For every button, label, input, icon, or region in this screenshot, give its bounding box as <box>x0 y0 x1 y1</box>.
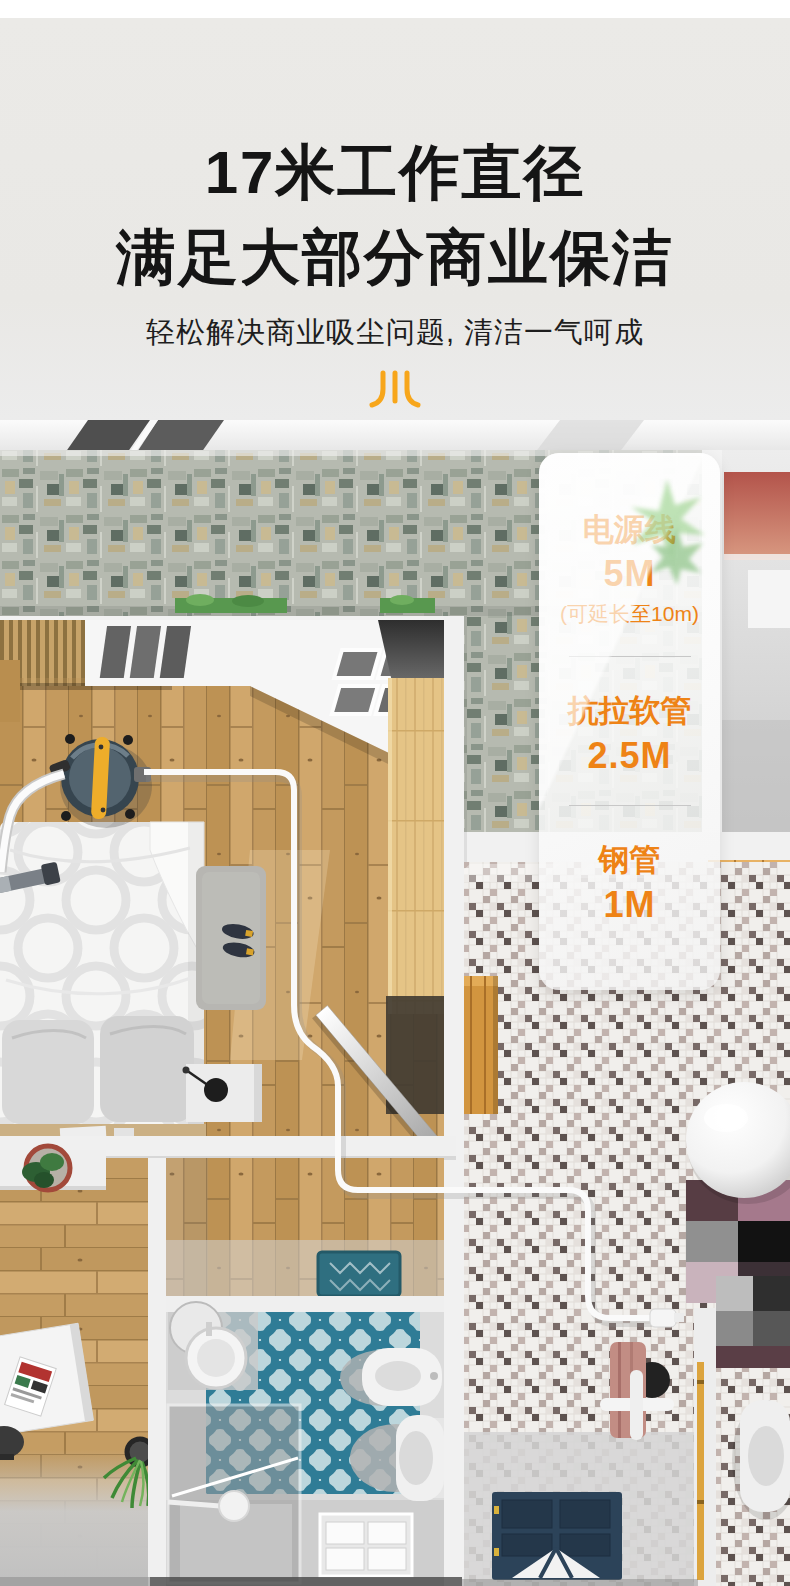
bedside-rug <box>196 866 266 1010</box>
blue-bathroom <box>166 1302 444 1586</box>
grid-mat <box>320 1514 412 1576</box>
office-room <box>0 1146 153 1586</box>
spec-label: 钢管 <box>539 838 720 882</box>
header: 17米工作直径 满足大部分商业保洁 轻松解决商业吸尘问题, 清洁一气呵成 <box>0 18 790 420</box>
shelf-with-plant <box>0 1146 106 1190</box>
shower-head <box>219 1491 249 1521</box>
product-detail-page: 17米工作直径 满足大部分商业保洁 轻松解决商业吸尘问题, 清洁一气呵成 <box>0 0 790 1586</box>
wall-shelf <box>0 660 20 722</box>
nightstand <box>183 1064 263 1122</box>
specs-panel: 电源线 5M (可延长至10m) 抗拉软管 2.5M 钢管 1M <box>539 453 720 990</box>
wall-with-yellow-door <box>694 1308 716 1586</box>
blue-door <box>492 1492 622 1580</box>
spec-note: (可延长至10m) <box>539 597 720 630</box>
lamp-head <box>204 1078 228 1102</box>
spec-item-power-cord: 电源线 5M (可延长至10m) <box>539 509 720 630</box>
bed <box>0 822 206 1146</box>
wall-office-right <box>148 1158 166 1586</box>
hallway <box>166 1158 444 1312</box>
shower-tub <box>168 1405 300 1583</box>
checker-wall-tiles <box>716 1276 790 1368</box>
bathroom-sink <box>168 1302 258 1390</box>
wall-bedroom-right <box>444 616 464 1586</box>
spec-label: 抗拉软管 <box>539 689 720 733</box>
wardrobe <box>388 678 444 1014</box>
bidet <box>340 1348 442 1406</box>
spec-value: 5M <box>539 551 720 597</box>
spec-item-steel-tube: 钢管 1M <box>539 838 720 928</box>
floorplan-image: 电源线 5M (可延长至10m) 抗拉软管 2.5M 钢管 1M <box>0 420 790 1586</box>
wall-picture <box>724 472 790 560</box>
white-dresser <box>748 570 790 628</box>
title-line-2: 满足大部分商业保洁 <box>0 215 790 300</box>
spec-value: 2.5M <box>539 733 720 779</box>
spec-label: 电源线 <box>539 509 720 551</box>
subtitle: 轻松解决商业吸尘问题, 清洁一气呵成 <box>0 312 790 352</box>
blue-mat <box>318 1252 400 1296</box>
divider <box>569 805 691 806</box>
spec-item-hose: 抗拉软管 2.5M <box>539 689 720 779</box>
chuan-brand-icon <box>364 369 426 415</box>
title-line-1: 17米工作直径 <box>0 130 790 215</box>
page-title: 17米工作直径 满足大部分商业保洁 <box>0 130 790 300</box>
bedroom <box>0 620 445 1150</box>
divider <box>569 656 691 657</box>
spec-value: 1M <box>539 882 720 928</box>
